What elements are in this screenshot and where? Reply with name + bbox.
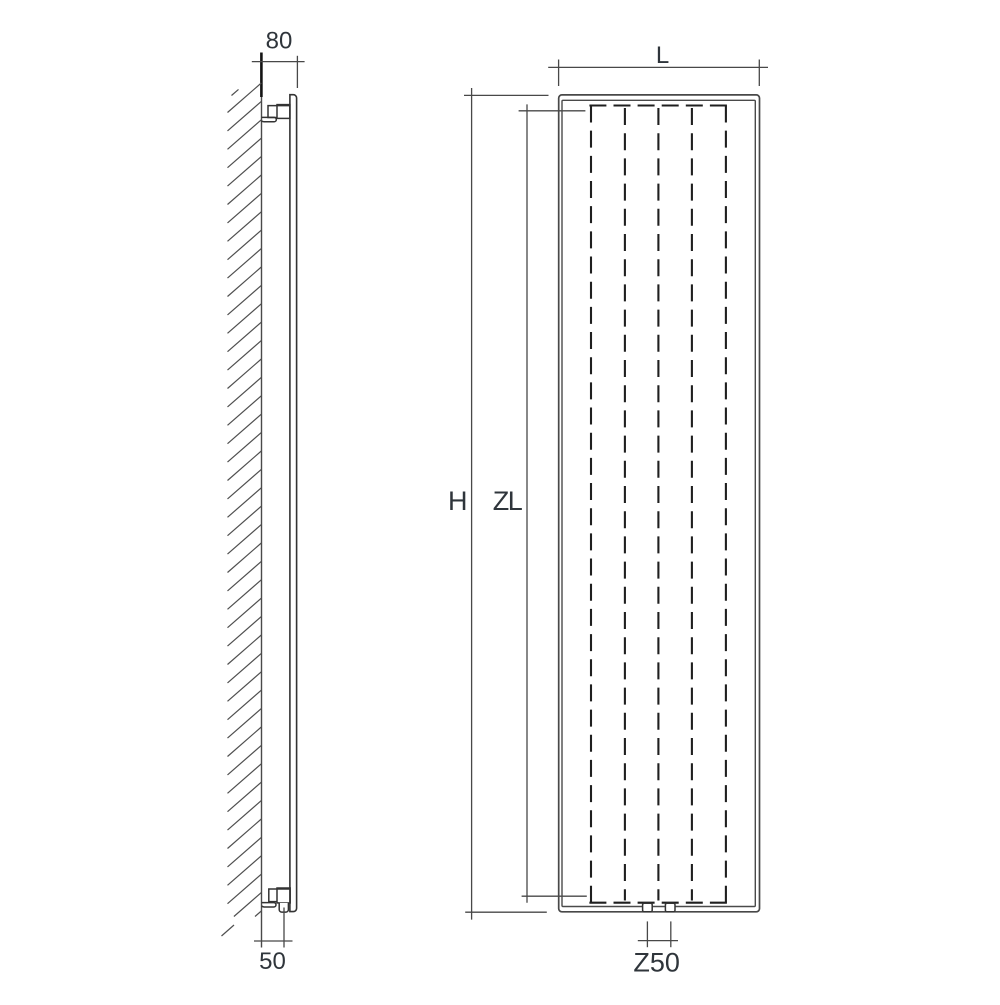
svg-text:50: 50 [259,948,286,975]
svg-text:80: 80 [266,28,293,55]
svg-text:H: H [448,486,468,516]
svg-text:L: L [656,42,669,69]
svg-text:Z50: Z50 [633,948,680,978]
svg-text:ZL: ZL [493,486,523,516]
